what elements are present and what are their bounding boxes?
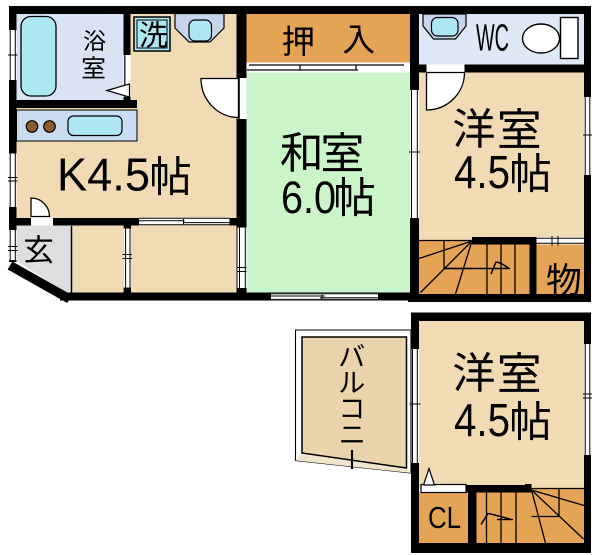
svg-text:4.5: 4.5 bbox=[454, 146, 510, 198]
svg-text:4.5: 4.5 bbox=[454, 394, 510, 446]
svg-text:6.0: 6.0 bbox=[281, 172, 336, 223]
svg-text:K4.5: K4.5 bbox=[57, 149, 150, 201]
svg-text:WC: WC bbox=[476, 18, 509, 59]
svg-text:CL: CL bbox=[428, 501, 461, 535]
